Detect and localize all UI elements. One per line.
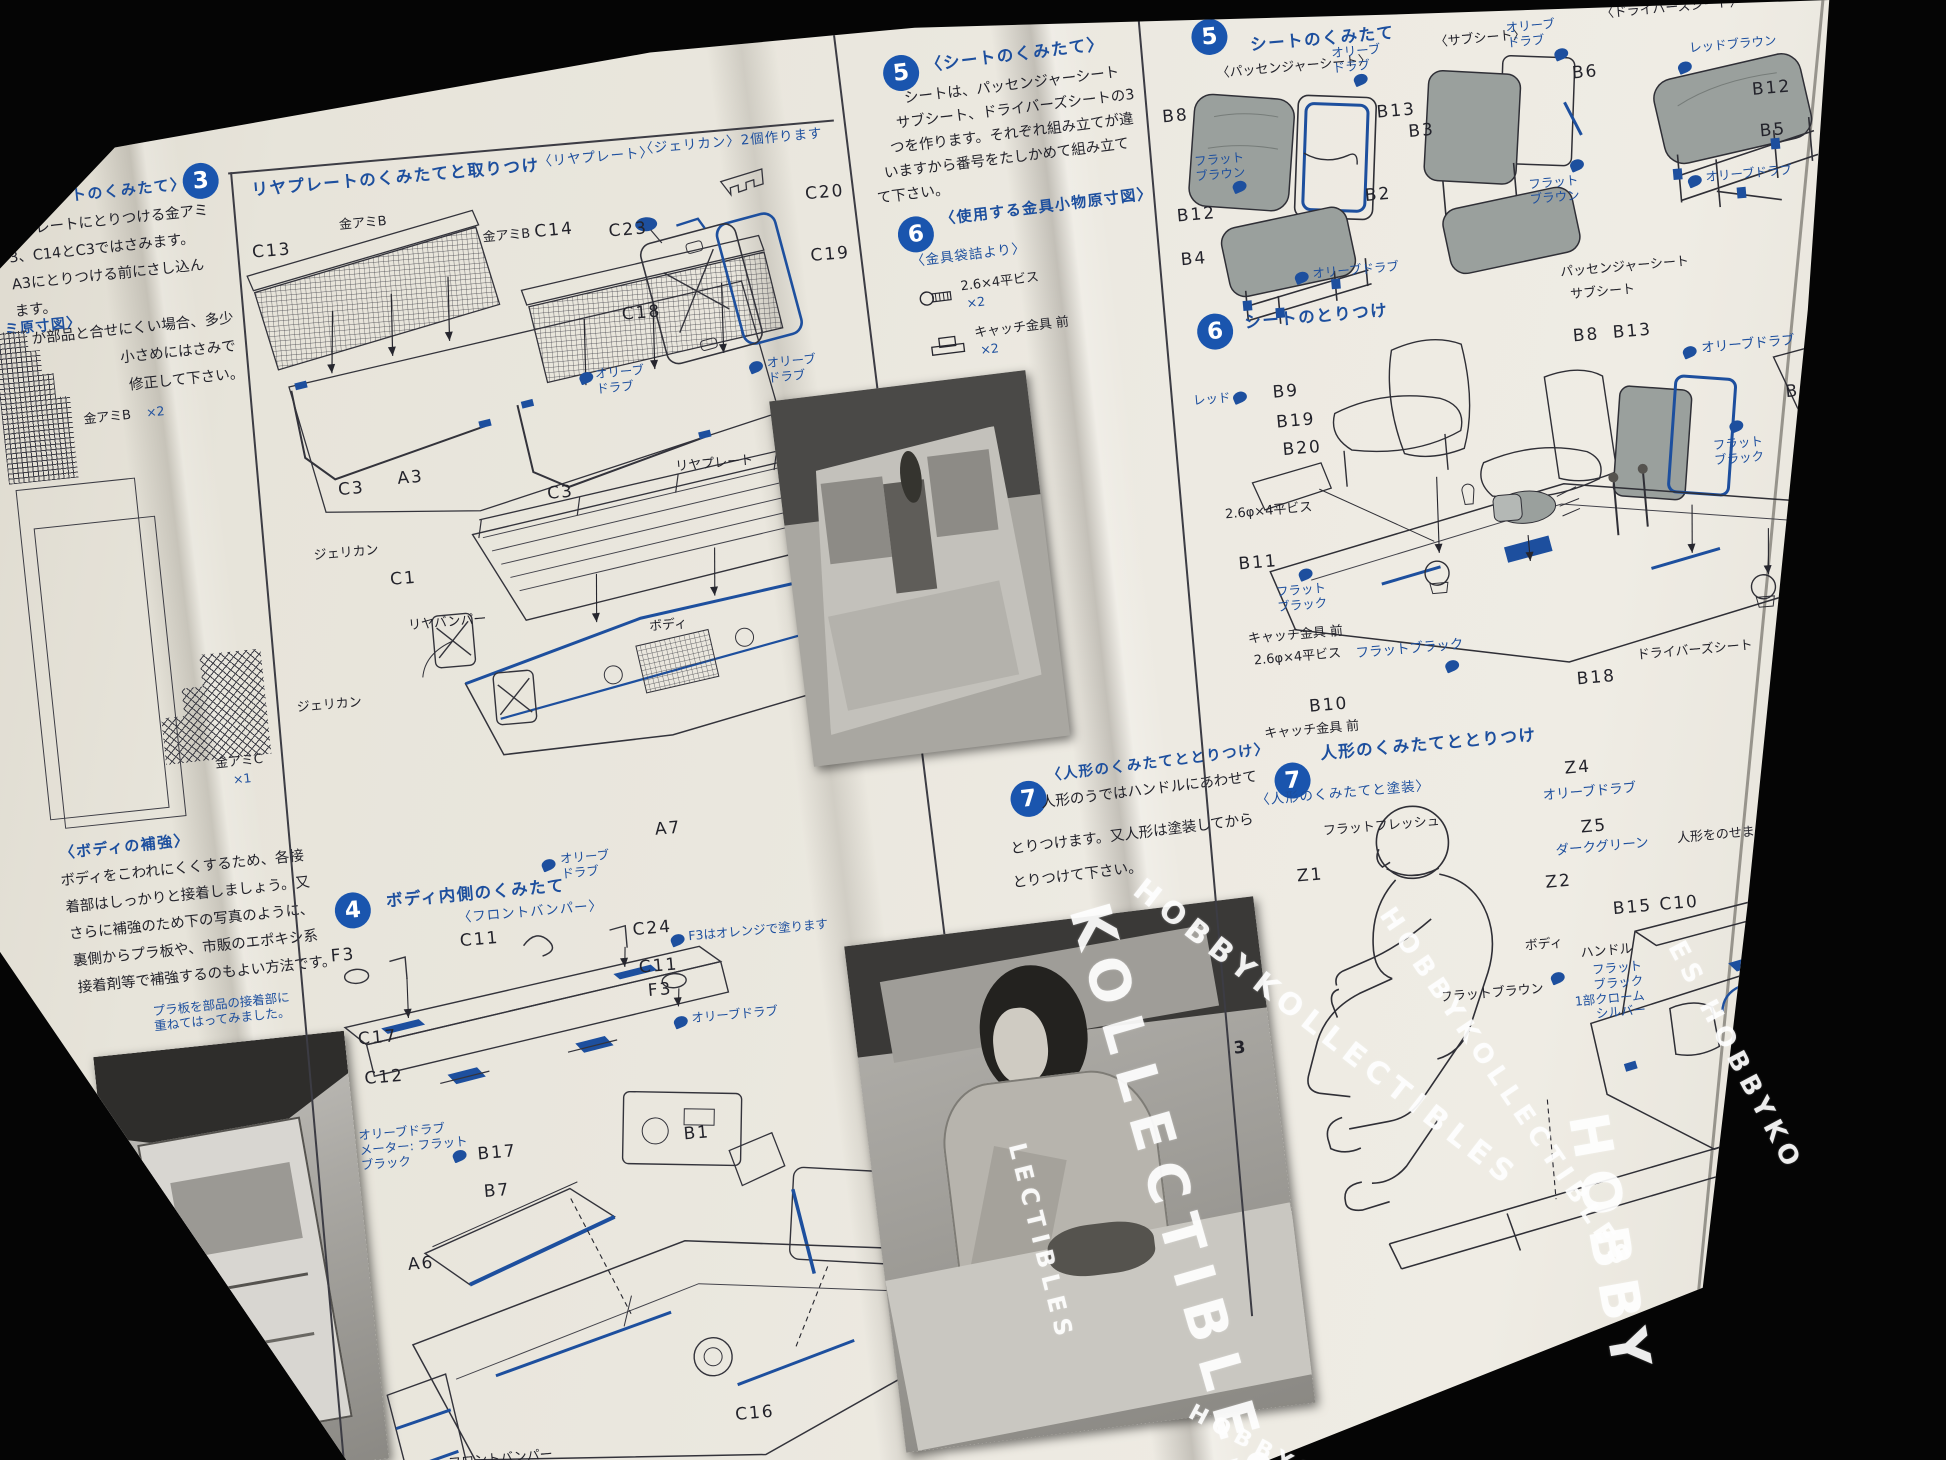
part-label: C11 [459, 928, 500, 951]
part-label: A7 [654, 818, 682, 840]
part-label: B1 [683, 1122, 711, 1144]
driver-seat-diagram [1627, 39, 1873, 253]
part-label: A6 [407, 1253, 435, 1275]
part-label: Z4 [1564, 757, 1592, 779]
step-number-badge: 3 [181, 161, 220, 200]
paint-label: フラット ブラウン [1528, 173, 1580, 207]
part-label: C14 [534, 219, 575, 242]
part-label: B13 [1376, 99, 1417, 122]
paint-color-icon [1811, 547, 1828, 563]
paint-label: オリーブ ドラブ [766, 352, 818, 386]
page-number: 3 [1233, 1038, 1247, 1059]
part-label: C18 [621, 301, 662, 324]
part-label: B10 [1785, 379, 1826, 402]
step6-title: 〈使用する金具小物原寸図〉 [939, 185, 1154, 229]
step7-text-line: とりつけます。又人形は塗装してから [1010, 812, 1255, 859]
paint-color-icon [540, 857, 557, 873]
part-label: B7 [483, 1180, 511, 1202]
part-label: B18 [1576, 666, 1617, 689]
paint-label: オリーブドラブ メーター: フラット ブラック [358, 1119, 470, 1173]
paint-label: フラット ブラック [1828, 551, 1880, 585]
part-label: Z1 [1296, 864, 1324, 886]
instruction-paper: ヤプレートのくみたて〉 ヤプレートにとりつける金アミ 3、C14とC3ではさみま… [0, 0, 1946, 1460]
paint-label: フラット ブラック 1部クローム シルバー [1570, 959, 1647, 1024]
part-label: Z2 [1545, 871, 1573, 893]
mesh-b-qty: ×2 [145, 404, 165, 421]
step3-subtitle: 〈リヤプレート〉 [538, 145, 655, 171]
part-label: C11 [638, 954, 679, 977]
part-label: B4 [1180, 248, 1208, 270]
part-label: B10 [1308, 693, 1349, 716]
paint-label: オリーブ ドラブ [560, 848, 612, 882]
catch-qty: ×2 [980, 341, 1000, 358]
part-label: C16 [734, 1402, 775, 1425]
catch-label: キャッチ金具 前 [974, 314, 1070, 341]
part-label: B9 [1272, 381, 1300, 403]
step-number-badge: 6 [896, 214, 936, 254]
seat-installation-diagram [1210, 276, 1935, 765]
part-label: B6 [1571, 61, 1599, 83]
callout-label: ボディ下部 [1852, 590, 1917, 611]
part-label: B11 [1843, 514, 1884, 537]
mesh-b-label: 金アミB [83, 408, 132, 428]
step-number-badge: 4 [333, 891, 372, 930]
paint-label: オリーブ ドラブ [1505, 17, 1557, 51]
step7-text-line: とりつけて下さい。 [1012, 860, 1144, 893]
part-label: F3 [647, 979, 673, 1001]
part-label: C20 [804, 181, 845, 204]
part-label: B17 [477, 1141, 518, 1164]
screw-icon [919, 286, 955, 308]
paint-label: オリーブ ドラブ [1331, 42, 1383, 76]
part-label: C24 [632, 917, 673, 940]
part-label: B20 [1282, 437, 1323, 460]
mesh-template-b [0, 326, 79, 484]
screw-label: 2.6×4平ビス [960, 270, 1040, 295]
part-label: C17 [357, 1026, 398, 1049]
part-label: B12 [1751, 76, 1792, 99]
part-label: C1 [389, 568, 417, 590]
paint-label: フラット ブラック [1275, 581, 1327, 615]
screw-qty: ×2 [966, 295, 986, 312]
step5-text-line: て下さい。 [876, 182, 950, 208]
photographed-instruction-sheet: ヤプレートのくみたて〉 ヤプレートにとりつける金アミ 3、C14とC3ではさみま… [0, 0, 1946, 1460]
paint-label: フラット ブラウン [1194, 150, 1246, 184]
paint-label: オリーブ ドラブ [594, 363, 646, 397]
part-label: B19 [1275, 409, 1316, 432]
catch-fitting-icon [929, 333, 967, 357]
paint-label: フラット ブラック [1712, 434, 1764, 468]
part-label: C19 [810, 243, 851, 266]
part-label: B13 [1612, 320, 1653, 343]
part-label: B5 [1759, 119, 1787, 141]
jerrycan-title: 〈ジェリカン〉2個作ります [639, 127, 823, 159]
part-label: B3 [1408, 120, 1436, 142]
part-label: B2 [1364, 184, 1392, 206]
reinforce-heading: 〈ボディの補強〉 [59, 832, 191, 863]
step-number-badge: 5 [881, 53, 921, 93]
step-number-badge: 5 [1190, 17, 1229, 56]
part-label: B11 [1238, 551, 1279, 574]
part-label: C13 [251, 239, 292, 262]
callout-label: ボディ下部 [1837, 1187, 1902, 1208]
part-label: B8 [1572, 324, 1600, 346]
interior-reference-photo [769, 370, 1070, 767]
part-label: F3 [330, 944, 356, 966]
step3-title: リヤプレートのくみたてと取りつけ [251, 155, 540, 200]
part-label: B8 [1161, 105, 1189, 127]
part-label: C23 [608, 218, 649, 241]
seat-group-title: 〈ドライバーズシート〉 [1600, 0, 1743, 22]
part-label: Z5 [1580, 815, 1608, 837]
part-label: B12 [1176, 203, 1217, 226]
